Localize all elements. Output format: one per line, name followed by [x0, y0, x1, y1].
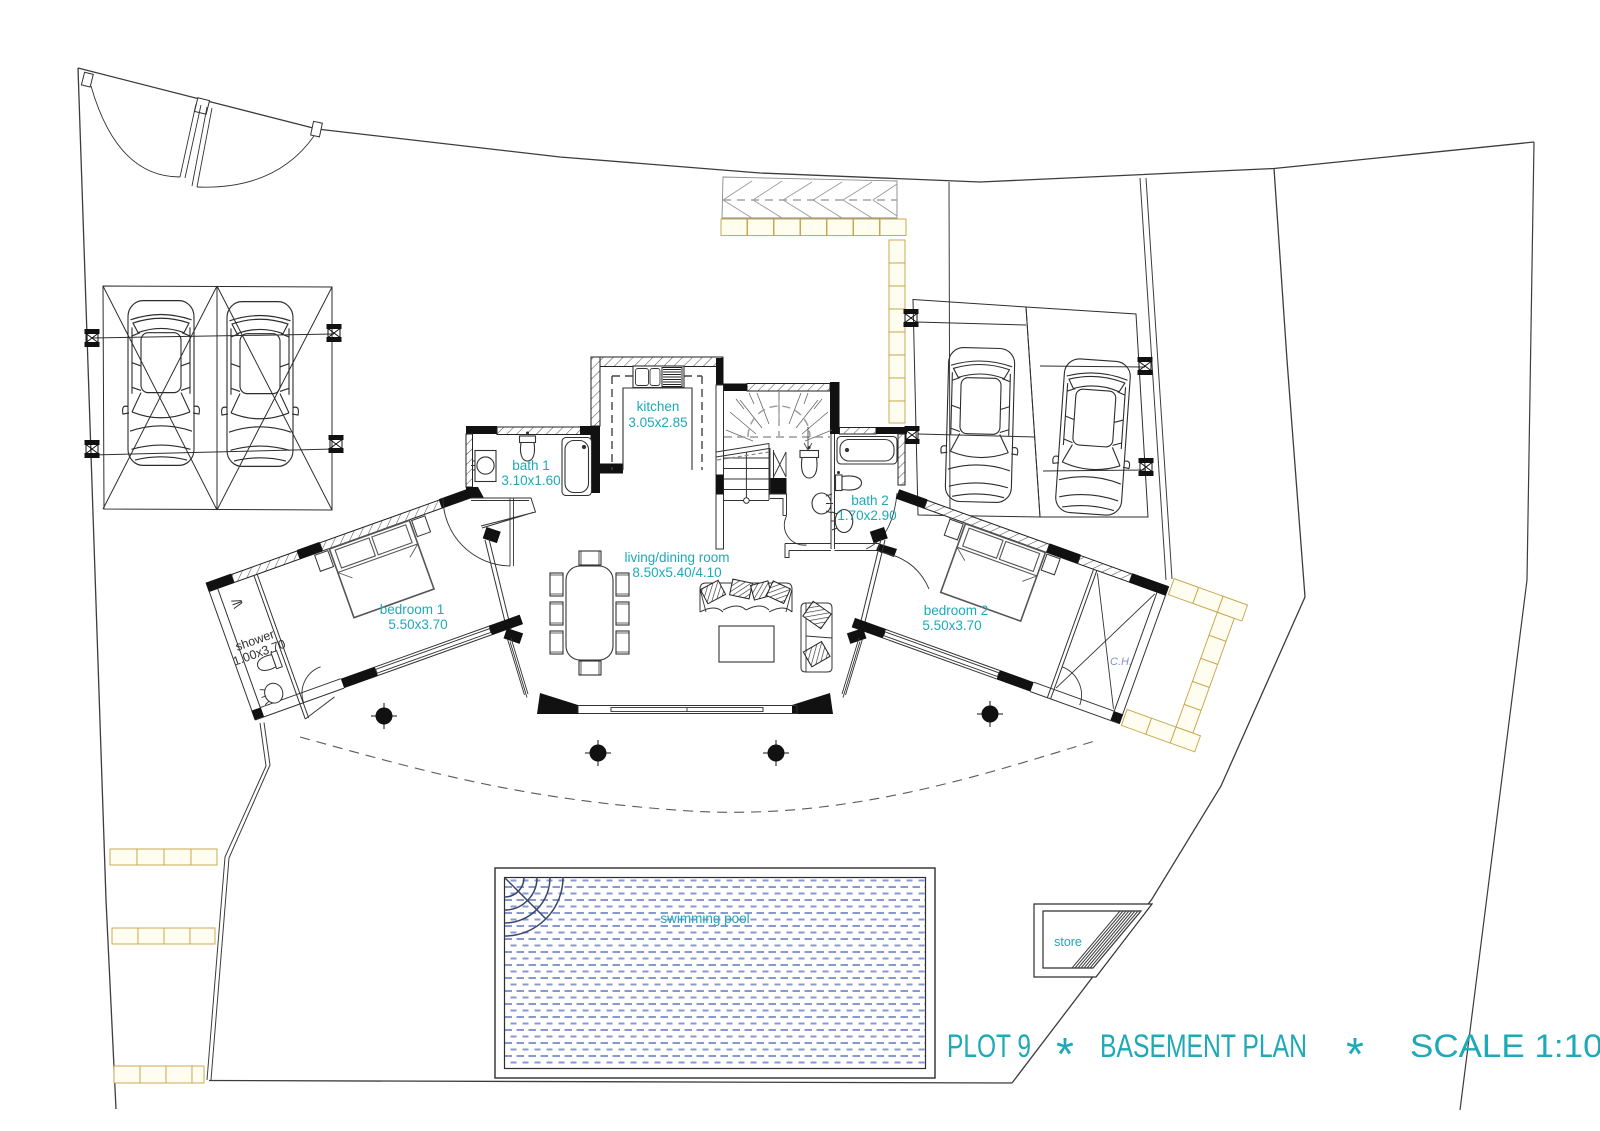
- svg-text:bedroom 1: bedroom 1: [380, 602, 445, 617]
- svg-text:store: store: [1054, 935, 1082, 949]
- svg-text:bath 2: bath 2: [851, 493, 889, 508]
- svg-text:PLOT 9: PLOT 9: [947, 1028, 1031, 1064]
- svg-text:bath 1: bath 1: [512, 458, 550, 473]
- svg-text:living/dining room: living/dining room: [624, 550, 729, 565]
- svg-text:kitchen: kitchen: [637, 399, 680, 414]
- svg-text:5.50x3.70: 5.50x3.70: [922, 618, 981, 633]
- svg-text:3.10x1.60: 3.10x1.60: [501, 473, 560, 488]
- svg-text:SCALE 1:100: SCALE 1:100: [1410, 1028, 1600, 1064]
- svg-text:1.70x2.90: 1.70x2.90: [837, 508, 896, 523]
- svg-text:8.50x5.40/4.10: 8.50x5.40/4.10: [632, 565, 721, 580]
- svg-text:bedroom 2: bedroom 2: [924, 603, 989, 618]
- svg-text:*: *: [1346, 1028, 1364, 1080]
- svg-text:swimming pool: swimming pool: [660, 911, 749, 926]
- svg-text:5.50x3.70: 5.50x3.70: [388, 617, 447, 632]
- svg-text:C.H.: C.H.: [1110, 656, 1132, 668]
- svg-text:3.05x2.85: 3.05x2.85: [628, 415, 687, 430]
- svg-text:*: *: [1056, 1028, 1074, 1080]
- svg-text:BASEMENT PLAN: BASEMENT PLAN: [1100, 1028, 1307, 1064]
